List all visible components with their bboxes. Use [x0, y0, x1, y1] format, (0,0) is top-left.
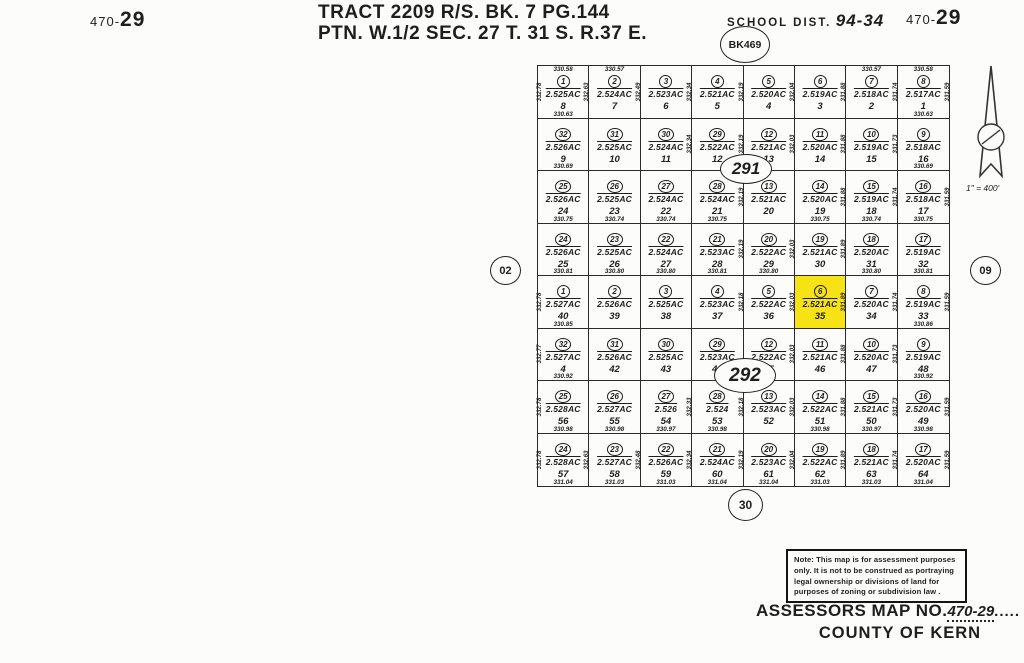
parcel-acreage: 2.521AC	[751, 194, 786, 204]
right-dimension: 332.19	[738, 240, 745, 259]
parcel-circle-number: 25	[555, 180, 571, 193]
parcel-acreage: 2.519AC	[854, 194, 889, 204]
parcel-cell[interactable]: 222.526AC59331.03332.34	[641, 434, 692, 487]
parcel-cell[interactable]: 302.524AC11332.34	[641, 119, 692, 172]
disclaimer-note: Note: This map is for assessment purpose…	[786, 549, 967, 603]
parcel-cell[interactable]: 92.519AC48330.92	[898, 329, 949, 382]
assessor-map-sheet: 470-29 TRACT 2209 R/S. BK. 7 PG.144 PTN.…	[0, 0, 1024, 663]
bottom-dimension: 330.81	[538, 268, 588, 275]
bottom-dimension: 330.63	[538, 111, 588, 118]
parcel-circle-number: 10	[863, 128, 879, 141]
parcel-cell[interactable]: 182.520AC31330.80	[846, 224, 897, 277]
map-title-line2: PTN. W.1/2 SEC. 27 T. 31 S. R.37 E.	[318, 24, 647, 45]
assessors-map-number-dots: .....	[994, 603, 1020, 620]
left-dimension: 332.78	[536, 450, 543, 469]
parcel-circle-number: 19	[812, 233, 828, 246]
right-dimension: 332.34	[686, 135, 693, 154]
parcel-acreage: 2.520AC	[803, 194, 838, 204]
parcel-lot-number: 42	[609, 364, 620, 375]
parcel-acreage: 2.526	[655, 404, 677, 414]
parcel-lot-number: 6	[663, 101, 668, 112]
parcel-circle-number: 4	[711, 285, 724, 298]
right-dimension: 332.03	[789, 292, 796, 311]
top-dimension: 330.57	[846, 66, 896, 73]
parcel-circle-number: 2	[608, 285, 621, 298]
bottom-dimension: 330.75	[538, 216, 588, 223]
right-dimension: 331.89	[840, 450, 847, 469]
parcel-lot-number: 20	[763, 206, 774, 217]
right-dimension: 332.49	[635, 82, 642, 101]
parcel-acreage: 2.518AC	[854, 89, 889, 99]
parcel-lot-number: 43	[661, 364, 672, 375]
right-dimension: 332.63	[583, 450, 590, 469]
bottom-dimension: 331.04	[898, 479, 949, 486]
parcel-circle-number: 9	[917, 128, 930, 141]
right-dimension: 332.19	[738, 450, 745, 469]
parcel-circle-number: 25	[555, 390, 571, 403]
parcel-acreage: 2.522AC	[803, 457, 838, 467]
parcel-circle-number: 5	[762, 285, 775, 298]
parcel-circle-number: 15	[863, 390, 879, 403]
note-line: Note: This map is for assessment purpose…	[794, 555, 960, 566]
parcel-cell[interactable]: 52.522AC36332.03	[744, 276, 795, 329]
parcel-acreage: 2.526AC	[546, 142, 581, 152]
parcel-cell[interactable]: 272.52654330.97332.33	[641, 381, 692, 434]
parcel-cell[interactable]: 152.519AC18330.74331.74	[846, 171, 897, 224]
parcel-circle-number: 23	[607, 443, 623, 456]
parcel-acreage: 2.520AC	[751, 89, 786, 99]
scale-label: 1" = 400'	[966, 183, 999, 193]
parcel-cell[interactable]: 32.523AC6332.34	[641, 66, 692, 119]
parcel-acreage: 2.524AC	[648, 142, 683, 152]
parcel-cell[interactable]: 322.526AC9330.69	[538, 119, 589, 172]
parcel-circle-number: 4	[711, 75, 724, 88]
parcel-cell[interactable]: 62.521AC35331.89	[795, 276, 846, 329]
parcel-circle-number: 15	[863, 180, 879, 193]
bottom-dimension: 330.98	[692, 426, 742, 433]
bottom-dimension: 330.80	[744, 268, 794, 275]
parcel-lot-number: 15	[866, 154, 877, 165]
parcel-lot-number: 5	[715, 101, 720, 112]
parcel-circle-number: 8	[917, 75, 930, 88]
parcel-circle-number: 2	[608, 75, 621, 88]
parcel-lot-number: 7	[612, 101, 617, 112]
sheet-number-value: 29	[936, 6, 961, 29]
parcel-cell[interactable]: 102.519AC15331.73	[846, 119, 897, 172]
sheet-number-prefix: 470-	[90, 14, 120, 29]
block-number-circle-291: 291	[720, 154, 772, 184]
parcel-acreage: 2.520AC	[906, 404, 941, 414]
parcel-acreage: 2.524AC	[648, 247, 683, 257]
parcel-cell[interactable]: 162.520AC49330.98331.59	[898, 381, 949, 434]
parcel-circle-number: 22	[658, 233, 674, 246]
assessors-map-number-label: ASSESSORS MAP NO.	[756, 601, 947, 620]
parcel-circle-number: 17	[915, 233, 931, 246]
parcel-cell[interactable]: 22.526AC39	[589, 276, 640, 329]
parcel-circle-number: 16	[915, 390, 931, 403]
parcel-circle-number: 8	[917, 285, 930, 298]
parcel-acreage: 2.528AC	[546, 457, 581, 467]
parcel-circle-number: 28	[709, 390, 725, 403]
bottom-dimension: 330.97	[641, 426, 691, 433]
bottom-dimension: 330.98	[795, 426, 845, 433]
parcel-acreage: 2.519AC	[906, 247, 941, 257]
right-dimension: 332.19	[738, 187, 745, 206]
parcel-circle-number: 18	[863, 233, 879, 246]
parcel-circle-number: 13	[761, 180, 777, 193]
left-dimension: 332.77	[536, 345, 543, 364]
parcel-acreage: 2.520AC	[906, 457, 941, 467]
parcel-circle-number: 1	[557, 285, 570, 298]
right-dimension: 331.88	[840, 345, 847, 364]
right-dimension: 332.03	[789, 240, 796, 259]
parcel-acreage: 2.525AC	[597, 247, 632, 257]
parcel-cell[interactable]: 42.521AC5332.19	[692, 66, 743, 119]
right-dimension: 331.74	[892, 292, 899, 311]
right-dimension: 332.34	[686, 450, 693, 469]
parcel-circle-number: 16	[915, 180, 931, 193]
right-dimension: 331.88	[840, 187, 847, 206]
parcel-cell[interactable]: 202.522AC29330.80332.03	[744, 224, 795, 277]
parcel-acreage: 2.526AC	[546, 194, 581, 204]
bottom-dimension: 330.75	[692, 216, 742, 223]
parcel-circle-number: 32	[555, 128, 571, 141]
parcel-circle-number: 32	[555, 338, 571, 351]
parcel-cell[interactable]: 272.524AC22330.74	[641, 171, 692, 224]
parcel-acreage: 2.525AC	[597, 194, 632, 204]
parcel-acreage: 2.521AC	[854, 457, 889, 467]
parcel-cell[interactable]: 72.520AC34331.74	[846, 276, 897, 329]
parcel-lot-number: 2	[869, 101, 874, 112]
parcel-cell[interactable]: 92.518AC16330.69	[898, 119, 949, 172]
right-dimension: 331.89	[840, 292, 847, 311]
left-dimension: 332.78	[536, 397, 543, 416]
parcel-cell[interactable]: 172.520AC64331.04331.59	[898, 434, 949, 487]
parcel-cell[interactable]: 102.520AC47331.73	[846, 329, 897, 382]
parcel-acreage: 2.520AC	[854, 299, 889, 309]
parcel-circle-number: 29	[709, 338, 725, 351]
parcel-acreage: 2.523AC	[700, 299, 735, 309]
parcel-cell[interactable]: 182.521AC63331.03331.74	[846, 434, 897, 487]
parcel-cell[interactable]: 330.5772.518AC2331.74	[846, 66, 897, 119]
bottom-dimension: 330.81	[692, 268, 742, 275]
parcel-circle-number: 12	[761, 128, 777, 141]
parcel-lot-number: 46	[815, 364, 826, 375]
parcel-acreage: 2.521AC	[803, 299, 838, 309]
bottom-dimension: 331.04	[744, 479, 794, 486]
parcel-circle-number: 3	[659, 75, 672, 88]
sheet-number-top-right: 470-29	[906, 6, 961, 30]
right-dimension: 331.74	[892, 187, 899, 206]
right-dimension: 331.89	[840, 240, 847, 259]
parcel-circle-number: 14	[812, 180, 828, 193]
parcel-acreage: 2.518AC	[906, 142, 941, 152]
parcel-cell[interactable]: 142.522AC51330.98331.88	[795, 381, 846, 434]
parcel-circle-number: 28	[709, 180, 725, 193]
parcel-acreage: 2.526AC	[597, 299, 632, 309]
parcel-circle-number: 21	[709, 443, 725, 456]
parcel-cell[interactable]: 192.522AC62331.03331.89	[795, 434, 846, 487]
parcel-cell[interactable]: 42.523AC37332.18	[692, 276, 743, 329]
parcel-acreage: 2.521AC	[803, 247, 838, 257]
parcel-acreage: 2.519AC	[854, 142, 889, 152]
assessors-map-number: ASSESSORS MAP NO.470-29.....	[756, 601, 1020, 621]
right-dimension: 331.73	[892, 135, 899, 154]
right-dimension: 331.59	[944, 450, 951, 469]
parcel-acreage: 2.524	[706, 404, 728, 414]
parcel-acreage: 2.521AC	[751, 142, 786, 152]
bottom-dimension: 331.03	[846, 479, 896, 486]
parcel-cell[interactable]: 330.5812.525AC8330.63332.63332.78	[538, 66, 589, 119]
right-dimension: 332.34	[686, 82, 693, 101]
right-dimension: 331.88	[840, 82, 847, 101]
right-dimension: 332.03	[789, 397, 796, 416]
bottom-dimension: 330.81	[898, 268, 949, 275]
note-line: purposes of zoning or subdivision law .	[794, 587, 960, 598]
parcel-lot-number: 30	[815, 259, 826, 270]
parcel-acreage: 2.525AC	[648, 299, 683, 309]
parcel-grid: 330.5812.525AC8330.63332.63332.78330.572…	[537, 65, 950, 487]
right-dimension: 332.04	[789, 82, 796, 101]
parcel-cell[interactable]: 162.518AC17330.75331.59	[898, 171, 949, 224]
parcel-acreage: 2.522AC	[751, 247, 786, 257]
parcel-acreage: 2.524AC	[700, 457, 735, 467]
parcel-circle-number: 9	[917, 338, 930, 351]
map-title: TRACT 2209 R/S. BK. 7 PG.144 PTN. W.1/2 …	[318, 3, 647, 44]
parcel-circle-number: 24	[555, 443, 571, 456]
parcel-cell[interactable]: 212.523AC28330.81332.19	[692, 224, 743, 277]
bottom-dimension: 331.03	[641, 479, 691, 486]
parcel-cell[interactable]: 302.525AC43	[641, 329, 692, 382]
parcel-acreage: 2.520AC	[854, 352, 889, 362]
bottom-dimension: 330.80	[846, 268, 896, 275]
parcel-circle-number: 10	[863, 338, 879, 351]
parcel-acreage: 2.525AC	[648, 352, 683, 362]
right-dimension: 331.73	[892, 397, 899, 416]
bottom-dimension: 330.98	[589, 426, 639, 433]
parcel-cell[interactable]: 330.5882.517AC1330.63331.59	[898, 66, 949, 119]
bottom-dimension: 330.92	[898, 373, 949, 380]
parcel-lot-number: 10	[609, 154, 620, 165]
parcel-cell[interactable]: 312.526AC42	[589, 329, 640, 382]
north-arrow-icon	[972, 64, 1010, 186]
parcel-acreage: 2.526AC	[648, 457, 683, 467]
parcel-cell[interactable]: 330.5722.524AC7332.49	[589, 66, 640, 119]
parcel-cell[interactable]: 152.521AC50330.97331.73	[846, 381, 897, 434]
parcel-circle-number: 30	[658, 338, 674, 351]
right-dimension: 331.59	[944, 187, 951, 206]
parcel-circle-number: 29	[709, 128, 725, 141]
bottom-dimension: 330.74	[589, 216, 639, 223]
note-line: only. It is not to be construed as portr…	[794, 566, 960, 577]
parcel-cell[interactable]: 322.527AC4330.92332.77	[538, 329, 589, 382]
bottom-dimension: 330.69	[538, 163, 588, 170]
parcel-acreage: 2.522AC	[803, 404, 838, 414]
bottom-dimension: 331.04	[538, 479, 588, 486]
bottom-dimension: 331.03	[795, 479, 845, 486]
right-dimension: 332.33	[686, 397, 693, 416]
right-dimension: 332.04	[789, 450, 796, 469]
parcel-cell[interactable]: 12.527AC40330.85332.78	[538, 276, 589, 329]
parcel-lot-number: 38	[661, 311, 672, 322]
parcel-acreage: 2.525AC	[597, 142, 632, 152]
school-district-value: 94-34	[836, 11, 884, 30]
parcel-circle-number: 13	[761, 390, 777, 403]
parcel-lot-number: 47	[866, 364, 877, 375]
parcel-acreage: 2.527AC	[597, 404, 632, 414]
parcel-circle-number: 1	[557, 75, 570, 88]
right-dimension: 332.18	[738, 397, 745, 416]
parcel-circle-number: 19	[812, 443, 828, 456]
parcel-circle-number: 12	[761, 338, 777, 351]
parcel-cell[interactable]: 242.526AC25330.81	[538, 224, 589, 277]
parcel-circle-number: 14	[812, 390, 828, 403]
parcel-acreage: 2.519AC	[906, 352, 941, 362]
parcel-cell[interactable]: 242.528AC57331.04332.63332.78	[538, 434, 589, 487]
parcel-circle-number: 31	[607, 128, 623, 141]
bottom-dimension: 330.75	[795, 216, 845, 223]
parcel-circle-number: 24	[555, 233, 571, 246]
bottom-dimension: 330.98	[898, 426, 949, 433]
bottom-dimension: 330.85	[538, 321, 588, 328]
parcel-cell[interactable]: 32.525AC38	[641, 276, 692, 329]
parcel-cell[interactable]: 252.526AC24330.75	[538, 171, 589, 224]
parcel-circle-number: 5	[762, 75, 775, 88]
parcel-lot-number: 3	[817, 101, 822, 112]
parcel-cell[interactable]: 142.520AC19330.75331.88	[795, 171, 846, 224]
parcel-circle-number: 26	[607, 180, 623, 193]
parcel-acreage: 2.526AC	[546, 247, 581, 257]
right-dimension: 331.73	[892, 345, 899, 364]
top-dimension: 330.58	[538, 66, 588, 73]
parcel-cell[interactable]: 262.525AC23330.74	[589, 171, 640, 224]
parcel-circle-number: 21	[709, 233, 725, 246]
parcel-circle-number: 6	[814, 285, 827, 298]
assessors-map-number-value: 470-29	[947, 603, 994, 622]
parcel-acreage: 2.527AC	[546, 299, 581, 309]
parcel-lot-number: 52	[763, 416, 774, 427]
parcel-circle-number: 23	[607, 233, 623, 246]
parcel-acreage: 2.527AC	[546, 352, 581, 362]
left-dimension: 332.78	[536, 292, 543, 311]
parcel-cell[interactable]: 232.525AC26330.80	[589, 224, 640, 277]
bottom-dimension: 330.80	[589, 268, 639, 275]
right-dimension: 332.03	[789, 135, 796, 154]
bottom-dimension: 330.92	[538, 373, 588, 380]
parcel-cell[interactable]: 112.521AC46331.88	[795, 329, 846, 382]
adjacent-page-circle-bottom: 30	[728, 489, 763, 521]
parcel-cell[interactable]: 112.520AC14331.88	[795, 119, 846, 172]
bottom-dimension: 330.69	[898, 163, 949, 170]
parcel-cell[interactable]: 212.524AC60331.04332.19	[692, 434, 743, 487]
parcel-cell[interactable]: 52.520AC4332.04	[744, 66, 795, 119]
right-dimension: 332.19	[738, 82, 745, 101]
bottom-dimension: 330.75	[898, 216, 949, 223]
parcel-cell[interactable]: 82.519AC33330.86331.59	[898, 276, 949, 329]
right-dimension: 332.18	[738, 292, 745, 311]
parcel-lot-number: 35	[815, 311, 826, 322]
parcel-acreage: 2.519AC	[906, 299, 941, 309]
parcel-lot-number: 37	[712, 311, 723, 322]
parcel-circle-number: 11	[812, 338, 827, 351]
bottom-dimension: 330.98	[538, 426, 588, 433]
parcel-cell[interactable]: 62.519AC3331.88	[795, 66, 846, 119]
top-dimension: 330.57	[589, 66, 639, 73]
bottom-dimension: 330.74	[641, 216, 691, 223]
bottom-dimension: 330.86	[898, 321, 949, 328]
parcel-acreage: 2.520AC	[854, 247, 889, 257]
right-dimension: 331.59	[944, 397, 951, 416]
parcel-circle-number: 20	[761, 233, 777, 246]
parcel-circle-number: 3	[659, 285, 672, 298]
bottom-dimension: 330.63	[898, 111, 949, 118]
parcel-acreage: 2.523AC	[751, 404, 786, 414]
parcel-cell[interactable]: 202.523AC61331.04332.04	[744, 434, 795, 487]
note-line: legal ownership or divisions of land for	[794, 577, 960, 588]
parcel-circle-number: 22	[658, 443, 674, 456]
parcel-acreage: 2.521AC	[700, 89, 735, 99]
parcel-circle-number: 17	[915, 443, 931, 456]
parcel-lot-number: 34	[866, 311, 877, 322]
bottom-dimension: 331.03	[589, 479, 639, 486]
parcel-cell[interactable]: 252.528AC56330.98332.78	[538, 381, 589, 434]
parcel-acreage: 2.517AC	[906, 89, 941, 99]
parcel-circle-number: 7	[865, 285, 878, 298]
parcel-acreage: 2.521AC	[854, 404, 889, 414]
parcel-acreage: 2.522AC	[751, 299, 786, 309]
map-title-line1: TRACT 2209 R/S. BK. 7 PG.144	[318, 3, 647, 24]
parcel-circle-number: 7	[865, 75, 878, 88]
parcel-lot-number: 14	[815, 154, 826, 165]
bottom-dimension: 330.80	[641, 268, 691, 275]
sheet-number-top-left: 470-29	[90, 8, 145, 32]
right-dimension: 331.74	[892, 82, 899, 101]
parcel-cell[interactable]: 312.525AC10	[589, 119, 640, 172]
parcel-circle-number: 20	[761, 443, 777, 456]
parcel-cell[interactable]: 232.527AC58331.03332.48	[589, 434, 640, 487]
parcel-acreage: 2.523AC	[700, 247, 735, 257]
parcel-circle-number: 31	[607, 338, 623, 351]
parcel-lot-number: 11	[661, 154, 671, 165]
block-number-circle-292: 292	[714, 358, 776, 393]
parcel-acreage: 2.528AC	[546, 404, 581, 414]
parcel-acreage: 2.527AC	[597, 457, 632, 467]
adjacent-page-circle-left: 02	[490, 256, 521, 285]
right-dimension: 331.74	[892, 450, 899, 469]
bottom-dimension: 330.97	[846, 426, 896, 433]
parcel-acreage: 2.524AC	[700, 194, 735, 204]
parcel-lot-number: 36	[763, 311, 774, 322]
right-dimension: 332.03	[789, 345, 796, 364]
right-dimension: 331.88	[840, 135, 847, 154]
parcel-acreage: 2.526AC	[597, 352, 632, 362]
parcel-acreage: 2.519AC	[803, 89, 838, 99]
parcel-circle-number: 18	[863, 443, 879, 456]
parcel-cell[interactable]: 222.524AC27330.80	[641, 224, 692, 277]
parcel-cell[interactable]: 172.519AC32330.81	[898, 224, 949, 277]
adjacent-page-circle-right: 09	[970, 256, 1001, 285]
parcel-acreage: 2.524AC	[597, 89, 632, 99]
parcel-acreage: 2.522AC	[700, 142, 735, 152]
book-reference-circle: BK469	[720, 26, 770, 63]
parcel-cell[interactable]: 262.527AC55330.98	[589, 381, 640, 434]
parcel-circle-number: 27	[658, 390, 674, 403]
sheet-number-prefix: 470-	[906, 12, 936, 27]
left-dimension: 332.78	[536, 82, 543, 101]
parcel-cell[interactable]: 192.521AC30331.89	[795, 224, 846, 277]
right-dimension: 332.48	[635, 450, 642, 469]
parcel-acreage: 2.524AC	[648, 194, 683, 204]
